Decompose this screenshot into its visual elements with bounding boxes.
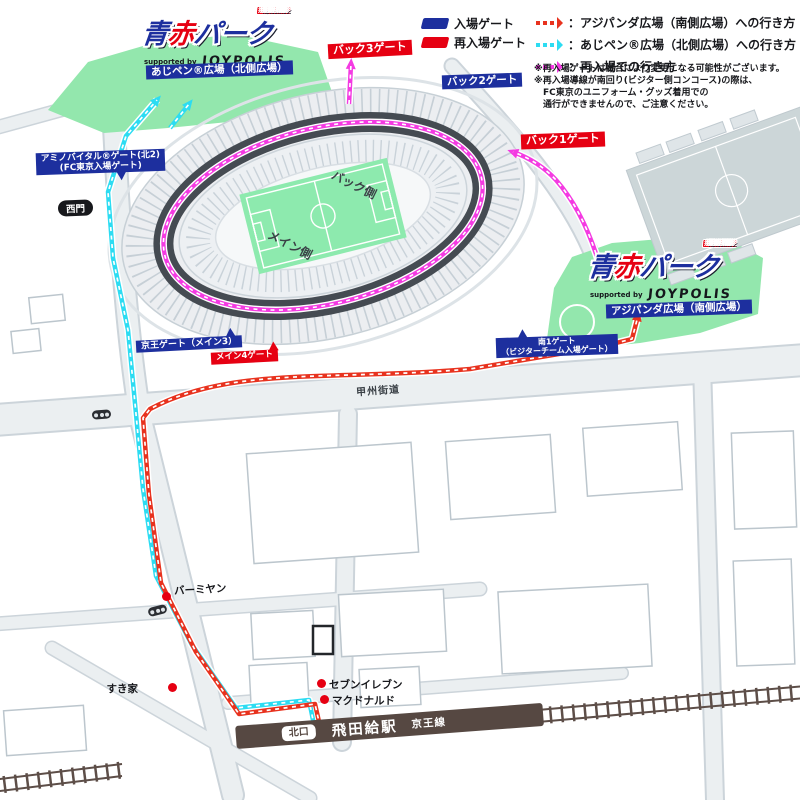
entry-gate-label: 入場ゲート xyxy=(454,15,514,32)
route-arrow-cyan-icon xyxy=(536,43,562,47)
legend-note-2: ※再入場導線が南回り(ビジター側コンコース)の際は、 xyxy=(534,76,800,88)
legend-route-north: ：あじペン®広場（北側広場）への行き方 xyxy=(568,36,796,53)
gate-label-back2: バック2ゲート xyxy=(442,73,523,90)
traffic-signal-icon xyxy=(92,409,112,419)
gate-label-west: 西門 xyxy=(58,199,94,216)
gate-label-south1: 南1ゲート （ビジターチーム入場ゲート） xyxy=(496,334,618,359)
station-north-exit: 北口 xyxy=(281,724,316,742)
supported-by-text: supported by xyxy=(590,291,643,299)
reentry-gate-label: 再入場ゲート xyxy=(454,34,526,51)
brand-park: パーク xyxy=(638,252,719,283)
legend-note-4: 通行ができませんので、ご注意ください。 xyxy=(534,100,800,112)
brand-ao: 青 xyxy=(586,252,615,283)
reentry-gate-swatch-icon xyxy=(421,37,450,48)
brand-badge: AO-AKA PARK xyxy=(256,6,292,15)
legend-note-3: FC東京のユニフォーム・グッズ着用での xyxy=(534,88,800,100)
gate-label-main4-text: メイン4ゲート xyxy=(216,350,273,363)
label-pointer xyxy=(517,324,527,338)
label-pointer xyxy=(268,336,279,351)
brand-logo-south: 青赤パーク AO-AKA PARK supported by JOYPOLIS xyxy=(588,245,731,302)
station-name: 飛田給駅 xyxy=(331,715,398,741)
legend-route-south: ：アジパンダ広場（南側広場）への行き方 xyxy=(568,14,795,31)
route-arrow-red-icon xyxy=(536,21,562,25)
legend-note-1: ※再入場ゲートは試合により変更になる可能性がございます。 xyxy=(534,64,800,76)
label-pointer xyxy=(116,171,126,185)
gate-label-back1: バック1ゲート xyxy=(521,132,605,150)
brand-aka: 赤 xyxy=(166,19,195,50)
poi-dot-icon xyxy=(317,679,326,688)
label-pointer xyxy=(225,323,236,338)
poi-dot-icon xyxy=(168,683,177,692)
poi-dot-icon xyxy=(162,592,171,601)
brand-ao: 青 xyxy=(140,19,169,50)
brand-badge: AO-AKA PARK xyxy=(702,239,738,248)
poi-sukiya: すき家 xyxy=(107,681,139,696)
gate-label-amino: アミノバイタル®ゲート(北2) (FC東京入場ゲート) xyxy=(36,149,166,176)
brand-park: パーク xyxy=(192,19,273,50)
stadium-access-map: 青赤パーク AO-AKA PARK supported by JOYPOLIS … xyxy=(0,0,800,800)
poi-mcdonalds: マクドナルド xyxy=(332,693,395,708)
poi-dot-icon xyxy=(320,695,329,704)
entry-gate-swatch-icon xyxy=(421,18,450,29)
road-label-koshu-kaido: 甲州街道 xyxy=(356,380,401,398)
poi-bamiyan: バーミヤン xyxy=(174,581,227,599)
brand-aka: 赤 xyxy=(612,252,641,283)
station-line-name: 京王線 xyxy=(411,714,447,732)
poi-seven-eleven: セブンイレブン xyxy=(329,677,403,692)
